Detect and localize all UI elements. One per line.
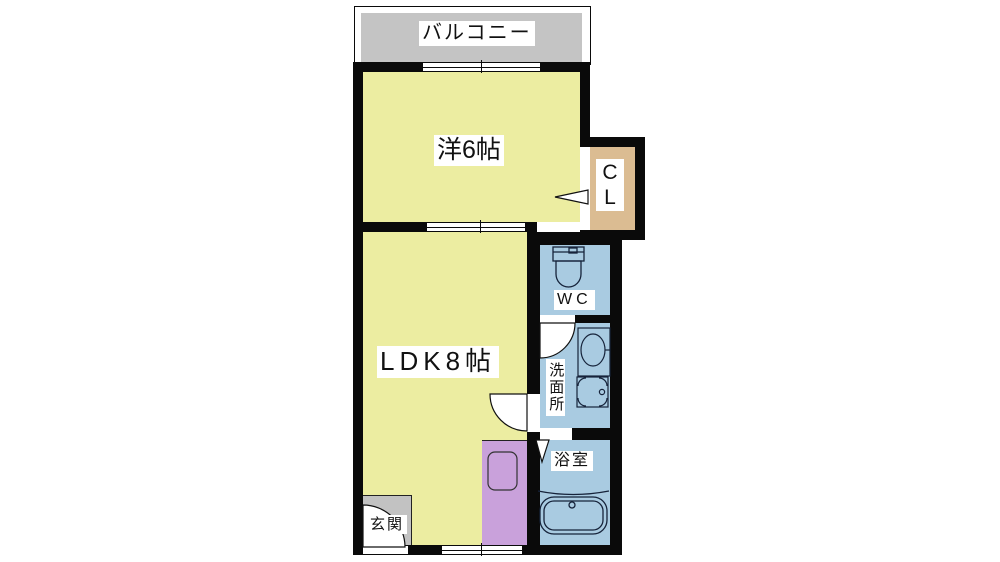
wc-label: WC	[554, 290, 595, 310]
fixtures-layer	[0, 0, 1000, 562]
closet-label-line1: C	[596, 160, 624, 185]
wc-door-arc	[540, 323, 575, 358]
toilet-icon	[553, 247, 584, 287]
closet-door-triangle	[555, 190, 588, 204]
ldk-label: LDK8帖	[377, 346, 499, 378]
washroom-door-arc	[490, 394, 527, 431]
closet-label-line2: L	[596, 185, 624, 210]
bathroom-label: 浴室	[551, 451, 593, 471]
floor-plan: バルコニー 洋6帖 C L LDK8帖 WC 洗面所 浴室 玄関	[0, 0, 1000, 562]
kitchen-sink-icon	[488, 452, 517, 490]
bedroom-label: 洋6帖	[434, 135, 504, 166]
washroom-label: 洗面所	[546, 359, 565, 416]
bath-door-triangle	[536, 440, 549, 462]
bathtub-icon	[538, 491, 609, 534]
entrance-label: 玄関	[367, 515, 407, 534]
closet-label: C L	[596, 159, 624, 211]
washing-machine-icon	[577, 377, 608, 407]
balcony-label: バルコニー	[419, 21, 535, 46]
sink-icon	[578, 328, 610, 376]
